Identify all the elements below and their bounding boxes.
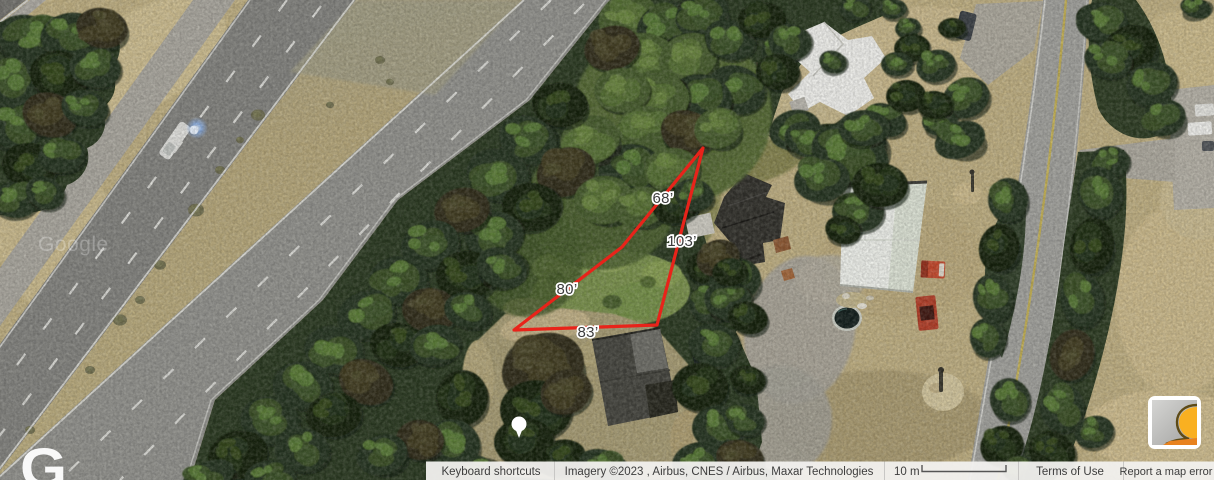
- svg-text:Terms of Use: Terms of Use: [1036, 466, 1104, 478]
- svg-text:10 m: 10 m: [894, 466, 920, 478]
- svg-text:Imagery ©2023 , Airbus, CNES /: Imagery ©2023 , Airbus, CNES / Airbus, M…: [565, 466, 874, 478]
- svg-text:G: G: [20, 437, 67, 480]
- svg-text:103’: 103’: [667, 233, 697, 250]
- svg-text:Keyboard shortcuts: Keyboard shortcuts: [441, 466, 540, 478]
- svg-text:83’: 83’: [578, 324, 599, 341]
- svg-text:Report a map error: Report a map error: [1120, 466, 1213, 478]
- svg-text:68’: 68’: [653, 190, 674, 207]
- svg-text:80’: 80’: [557, 281, 578, 298]
- svg-text:Google: Google: [38, 233, 109, 256]
